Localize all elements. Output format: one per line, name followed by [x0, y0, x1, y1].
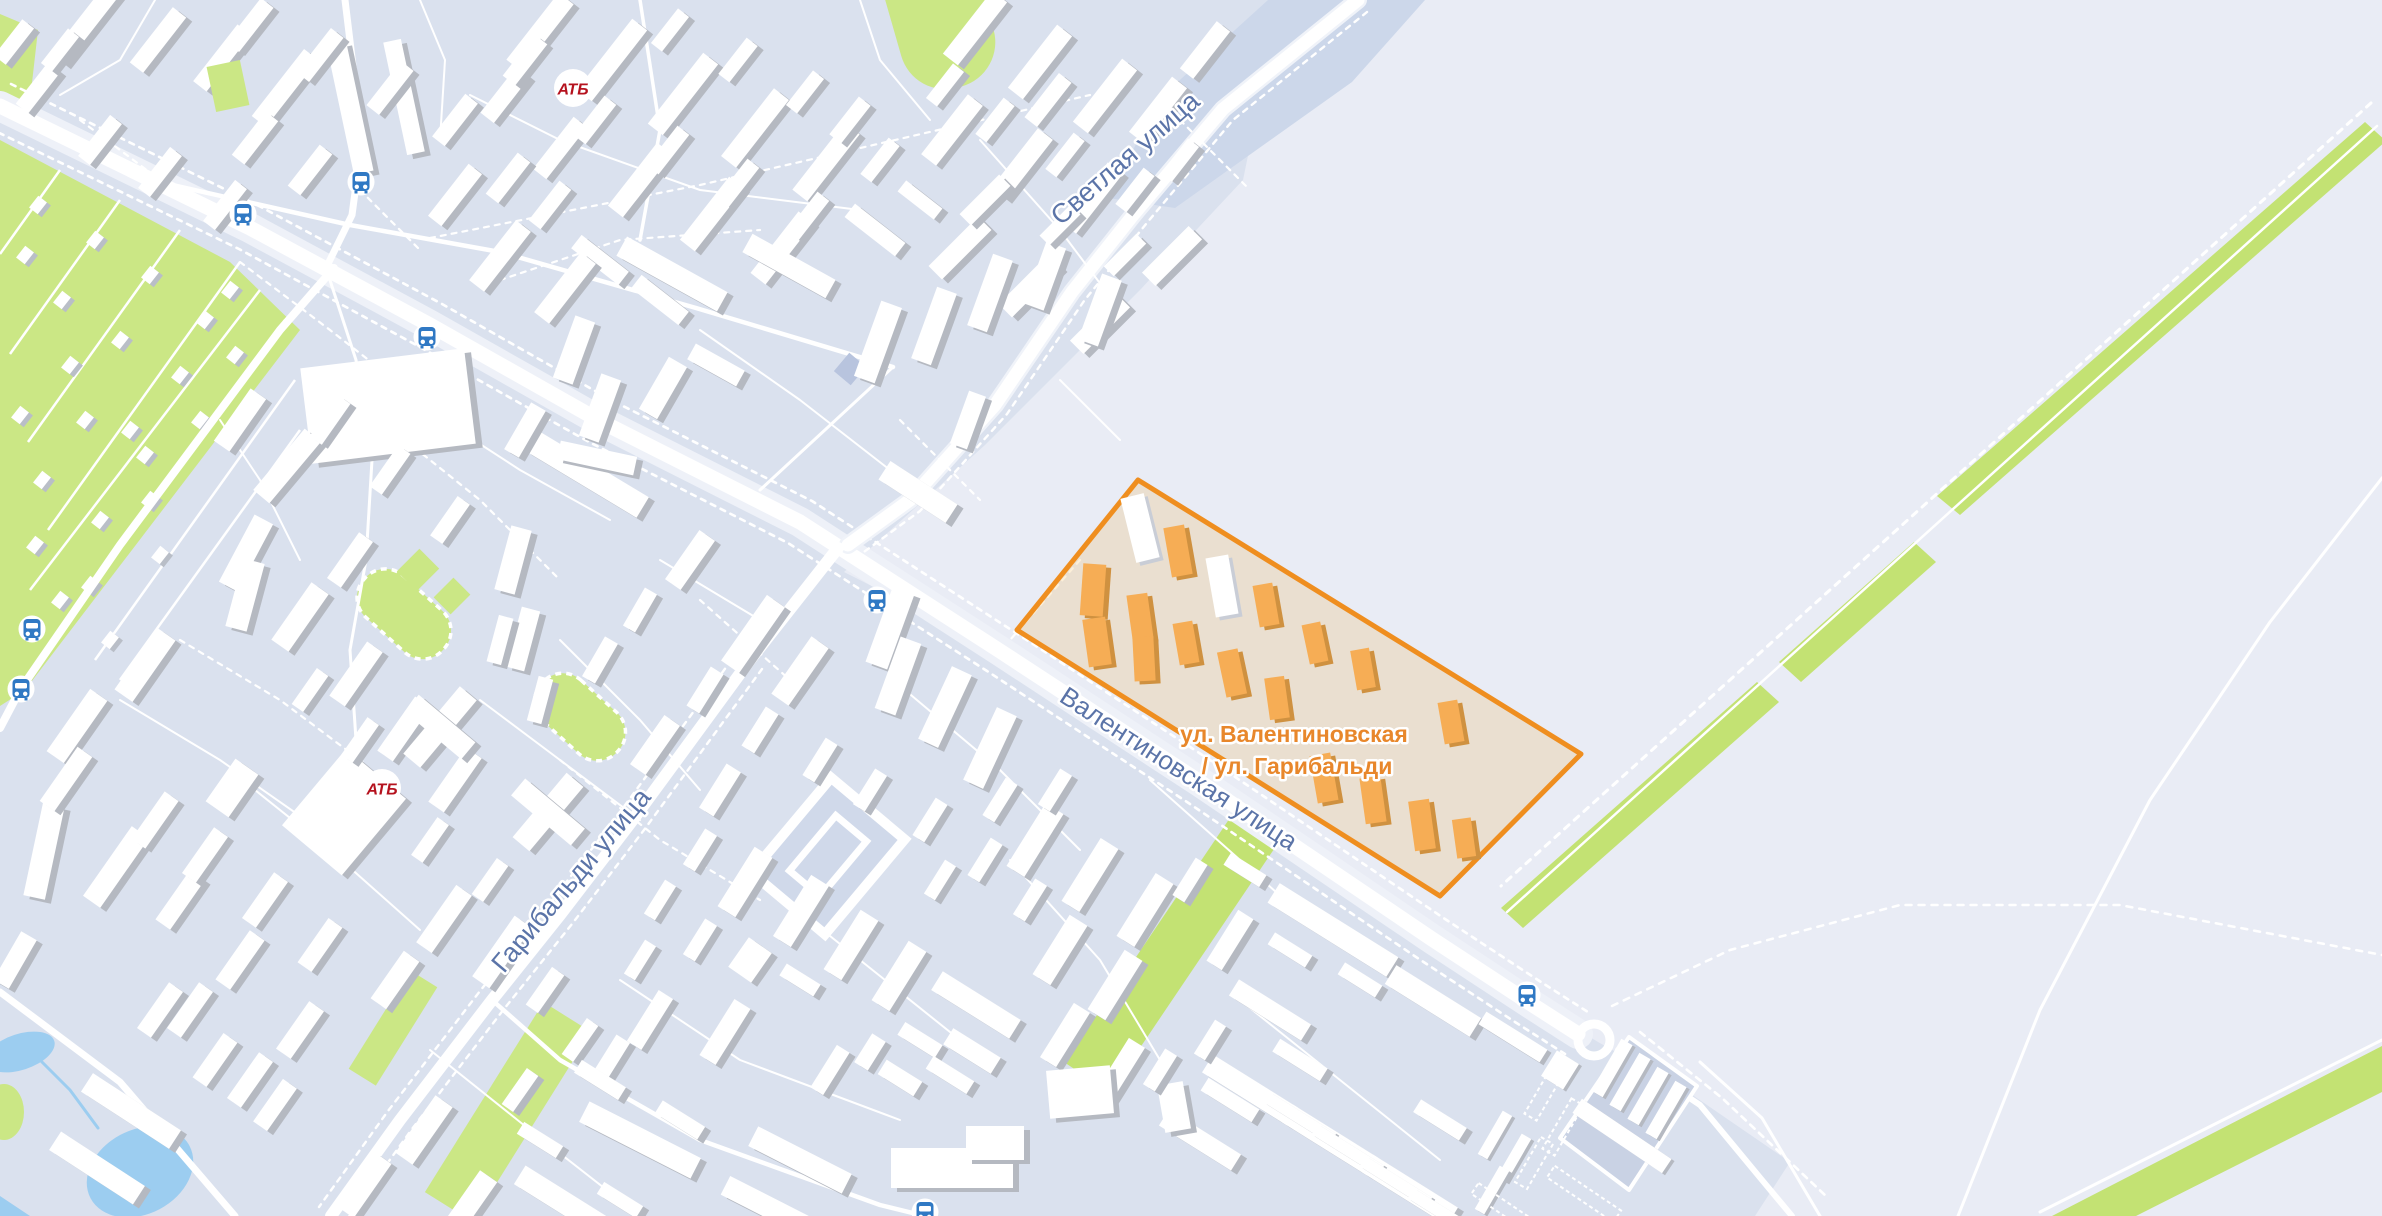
svg-text:АТБ: АТБ: [365, 782, 397, 799]
svg-text:ул. Валентиновская: ул. Валентиновская: [1180, 721, 1408, 747]
svg-text:/ ул. Гарибальди: / ул. Гарибальди: [1202, 753, 1393, 779]
svg-text:АТБ: АТБ: [556, 82, 588, 99]
